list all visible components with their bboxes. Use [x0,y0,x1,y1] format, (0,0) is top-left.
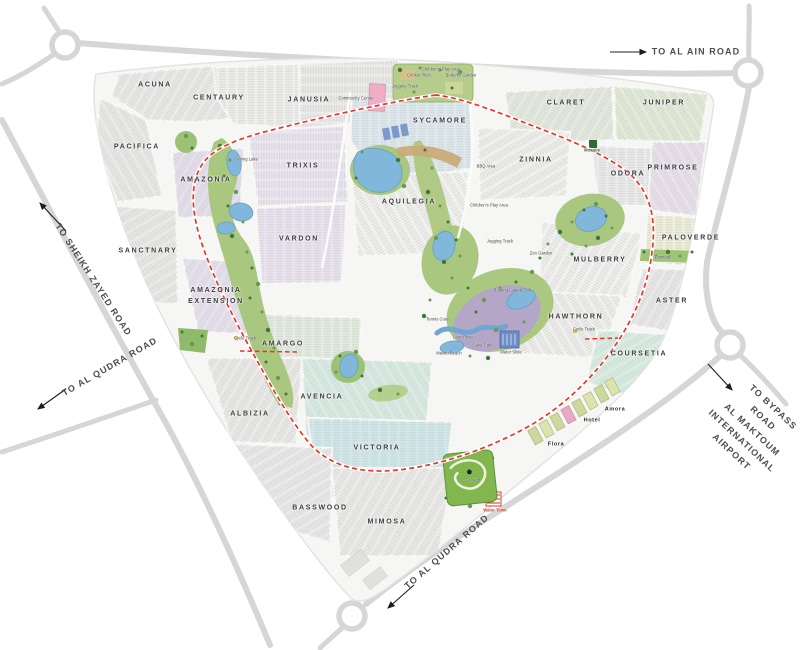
tree-icon [402,184,406,188]
tree-icon [191,147,194,150]
tree-icon [246,251,249,254]
tree-icon [494,328,498,332]
cluster-texture-mimosa [332,468,452,556]
tree-icon [442,260,446,264]
tree-icon [679,255,682,258]
tree-icon [378,388,382,392]
tree-icon [611,227,614,230]
tree-icon [439,205,442,208]
bottom-stub-sw [320,627,343,648]
tree-icon [422,314,426,318]
tree-icon [229,159,232,162]
tree-icon [469,355,472,358]
tree-icon [451,87,454,90]
topleft-stub-down [2,55,53,84]
tree-icon [486,356,490,360]
bypass-arrow [708,364,732,390]
tree-icon [655,255,658,258]
tree-icon [397,393,400,396]
tree-icon [396,158,400,162]
tree-icon [361,151,364,154]
roundabout-topright [735,60,761,86]
park-detail [400,70,415,80]
tree-icon [285,393,288,396]
tree-icon [434,236,438,240]
tree-icon [539,257,542,260]
tree-icon [256,282,260,286]
tree-icon [459,255,462,258]
roundabout-topleft [52,32,78,58]
tree-icon [201,335,204,338]
tree-icon [424,149,427,152]
tree-icon [475,311,478,314]
qudra-west-road [2,400,156,452]
tree-icon [583,209,586,212]
tree-icon [691,251,694,254]
tree-icon [426,190,430,194]
tree-icon [181,331,184,334]
cluster-texture-zinnia [478,128,570,200]
right-stub-se [741,356,786,404]
qudra-south-arrow [388,585,414,608]
tree-icon [447,221,450,224]
tree-icon [571,253,574,256]
tree-icon [354,350,358,354]
tree-icon [273,347,276,350]
tree-icon [413,91,416,94]
cycle-track-icon [573,329,577,333]
tree-icon [467,287,470,290]
tree-icon [251,267,254,270]
cycle-track-icon [234,336,238,340]
tree-icon [190,342,194,346]
tree-icon [230,234,234,238]
topleft-stub-up [44,8,60,33]
tree-icon [266,328,270,332]
cluster-texture-trixis [248,126,348,206]
tree-icon [666,250,670,254]
tree-icon [227,205,230,208]
tree-icon [530,270,534,274]
tree-icon [429,299,432,302]
tree-icon [355,177,358,180]
park-detail [445,82,463,94]
roundabout-right [717,332,743,358]
tree-icon [276,376,280,380]
tree-icon [523,321,526,324]
tree-icon [558,230,562,234]
tree-icon [499,287,502,290]
tree-icon [361,375,364,378]
tree-icon [594,202,598,206]
tree-icon [223,175,226,178]
tree-icon [265,361,268,364]
tree-icon [482,298,486,302]
tree-icon [451,277,454,280]
tree-icon [249,297,252,300]
tree-icon [431,167,434,170]
tree-icon [335,371,338,374]
sheikh-zayed-arrow [40,203,66,231]
tree-icon [439,69,442,72]
tree-icon [184,134,188,138]
topright-stub-up [749,6,750,60]
cluster-texture-basswood [234,444,332,542]
mosque-building [589,140,597,148]
tree-icon [571,221,574,224]
qudra-west-arrow [38,389,66,409]
tree-icon [515,281,518,284]
tree-icon [242,221,245,224]
tree-icon [398,68,402,72]
tree-icon [547,243,550,246]
tree-icon [234,190,238,194]
cluster-texture-primrose [648,142,706,216]
tree-icon [585,245,588,248]
tree-icon [339,355,342,358]
tree-icon [605,215,608,218]
map-artwork [0,0,800,650]
tree-icon [261,311,264,314]
tree-icon [419,67,422,70]
cluster-texture-juniper [614,86,708,142]
right-highway [706,87,749,333]
tree-icon [455,239,458,242]
cluster-texture-sanctnary [112,206,178,304]
masterplan-map: ACUNACENTAURYJANUSIASYCAMORECLARETJUNIPE… [0,0,800,650]
tree-icon [458,70,462,74]
tree-icon [596,236,600,240]
tree-icon [643,251,646,254]
water-slide-building [500,331,519,348]
roundabout-bottom [339,603,365,629]
